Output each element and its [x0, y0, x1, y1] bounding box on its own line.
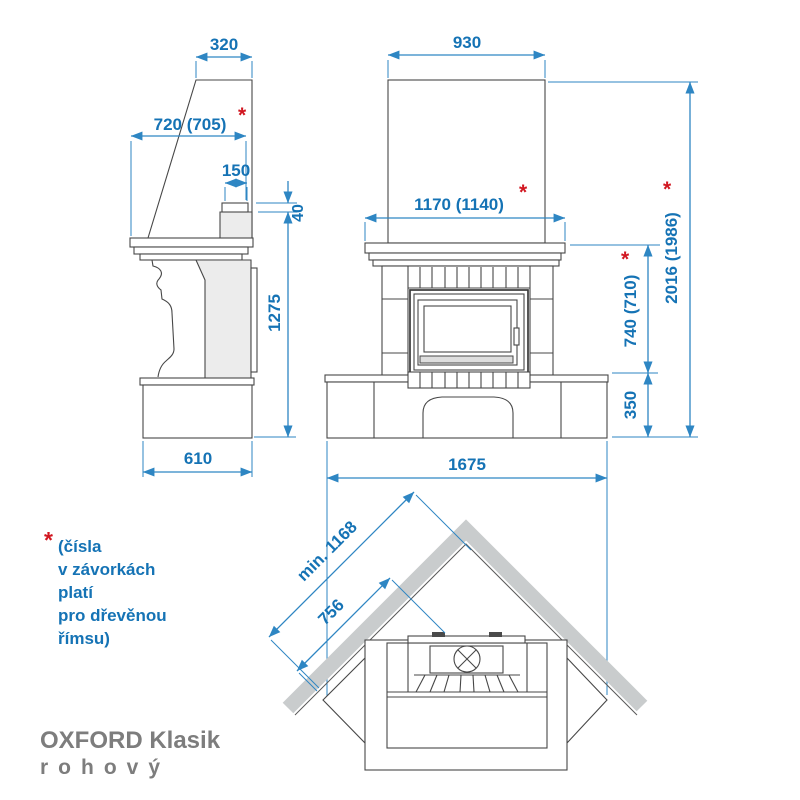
dim-label: 2016 (1986)	[662, 212, 681, 304]
front-shelf-molding-2	[373, 260, 559, 266]
dim-side-top-width: 320	[196, 35, 252, 78]
asterisk-mark: *	[663, 178, 672, 201]
dim-front-base-height: 350	[621, 373, 648, 437]
side-shelf-top	[130, 238, 253, 247]
footnote-line-4: pro dřevěnou	[58, 606, 167, 625]
dim-label: 720 (705)	[154, 115, 227, 134]
dim-label: 40	[290, 204, 307, 222]
dim-line	[269, 492, 414, 637]
dim-label: 1275	[265, 294, 284, 332]
front-shelf-molding-1	[369, 253, 561, 260]
plan-tab-right	[489, 632, 502, 637]
front-base-body	[327, 382, 607, 438]
dim-label: 350	[621, 391, 640, 419]
footnote-line-1: (čísla	[58, 537, 102, 556]
product-variant: rohový	[40, 756, 170, 779]
dim-label: 1675	[448, 455, 486, 474]
dim-side-base-depth: 610	[143, 441, 252, 477]
side-shelf-molding-1	[134, 247, 248, 254]
side-base-body	[143, 385, 252, 438]
ext-line	[416, 495, 471, 550]
log-retainer-bar	[420, 356, 513, 363]
side-body-panel	[196, 260, 251, 378]
footnote-line-2: v závorkách	[58, 560, 155, 579]
side-shelf-molding-2	[140, 254, 242, 260]
side-ornate-profile	[152, 260, 174, 377]
product-title: OXFORD Klasik rohový	[40, 727, 221, 779]
front-view: 930 1170 (1140) * 2016 (1986) * 740 (710…	[325, 33, 698, 701]
dim-label: 930	[453, 33, 481, 52]
side-firebox-top-panel	[220, 212, 252, 238]
side-flue-collar	[222, 203, 248, 212]
dim-front-hood-width: 930	[388, 33, 545, 78]
dim-side-body-height: 1275	[254, 212, 296, 437]
top-view: min. 1168 756	[269, 492, 642, 770]
footnote-line-5: římsu)	[58, 629, 110, 648]
dim-side-collar-height: 40	[256, 181, 307, 222]
firebox-glass	[424, 306, 511, 352]
dim-label: 740 (710)	[621, 275, 640, 348]
side-back-strip	[251, 268, 257, 372]
footnote-line-3: platí	[58, 583, 94, 602]
side-view: 320 720 (705) * 150 40 1275	[130, 35, 307, 477]
asterisk-mark: *	[238, 104, 247, 127]
dim-front-firebox-zone-height: 740 (710) *	[570, 245, 660, 373]
dim-label: 150	[222, 161, 250, 180]
dim-label: 756	[314, 595, 347, 628]
footnote: * (čísla v závorkách platí pro dřevěnou …	[44, 527, 167, 648]
asterisk-mark: *	[621, 248, 630, 271]
technical-drawing: 320 720 (705) * 150 40 1275	[0, 0, 800, 800]
door-handle	[514, 328, 519, 345]
product-name: OXFORD Klasik	[40, 727, 221, 754]
dim-label: 610	[184, 449, 212, 468]
plan-tab-left	[432, 632, 445, 637]
front-shelf-top	[365, 243, 565, 253]
plan-hearth-flange	[408, 636, 525, 643]
ext-line	[271, 640, 319, 688]
footnote-asterisk: *	[44, 527, 53, 553]
dim-label: 1170 (1140)	[414, 195, 504, 214]
asterisk-mark: *	[519, 181, 528, 204]
side-base-ledge	[140, 378, 254, 385]
fireplace-technical-drawing-page: 320 720 (705) * 150 40 1275	[0, 0, 800, 800]
dim-label: 320	[210, 35, 238, 54]
